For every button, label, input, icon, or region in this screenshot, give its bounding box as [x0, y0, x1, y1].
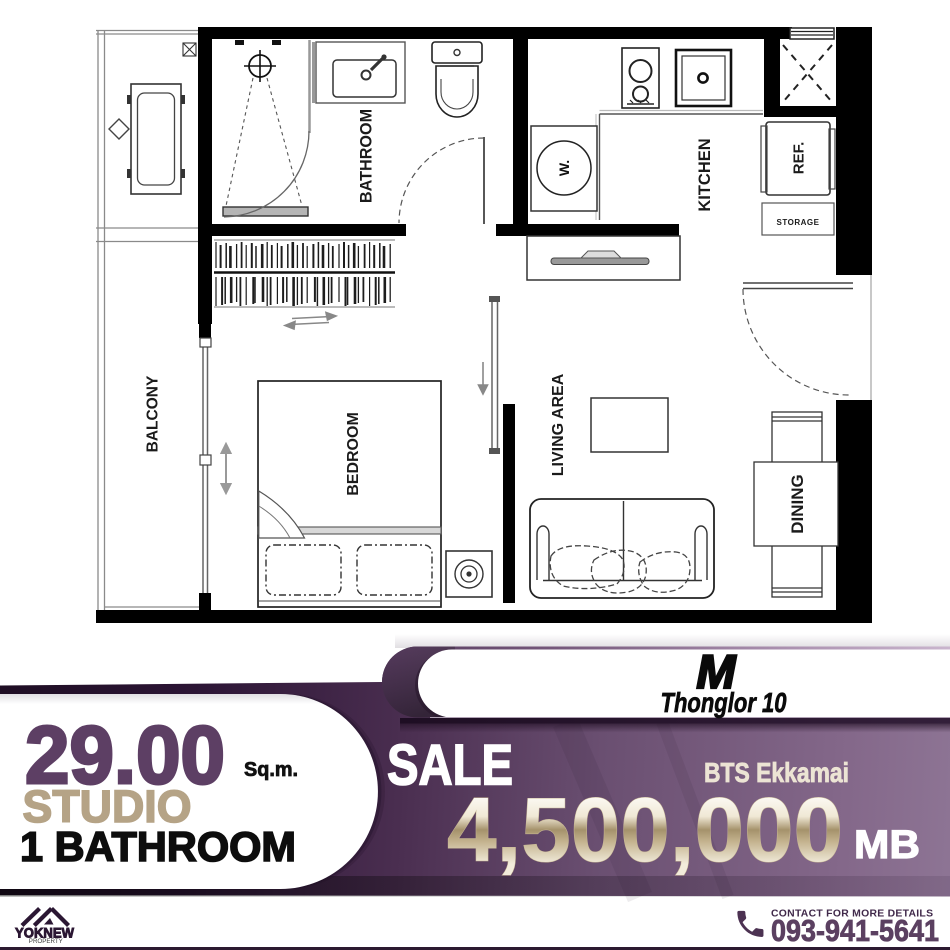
- svg-text:STORAGE: STORAGE: [777, 218, 820, 227]
- svg-text:BEDROOM: BEDROOM: [345, 412, 362, 496]
- svg-text:LIVING AREA: LIVING AREA: [550, 373, 567, 476]
- svg-text:BALCONY: BALCONY: [145, 375, 162, 452]
- svg-text:Sq.m.: Sq.m.: [244, 758, 298, 781]
- svg-text:REF.: REF.: [791, 142, 808, 175]
- svg-text:PROPERTY: PROPERTY: [29, 938, 63, 945]
- svg-text:KITCHEN: KITCHEN: [696, 138, 714, 211]
- svg-text:MB: MB: [854, 823, 920, 867]
- svg-text:093-941-5641: 093-941-5641: [771, 913, 939, 948]
- svg-text:Thonglor 10: Thonglor 10: [661, 687, 787, 718]
- svg-text:W.: W.: [556, 160, 572, 176]
- svg-text:BATHROOM: BATHROOM: [357, 109, 375, 203]
- svg-text:1 BATHROOM: 1 BATHROOM: [20, 823, 296, 870]
- svg-text:DINING: DINING: [788, 474, 807, 534]
- svg-text:4,500,000: 4,500,000: [447, 780, 843, 881]
